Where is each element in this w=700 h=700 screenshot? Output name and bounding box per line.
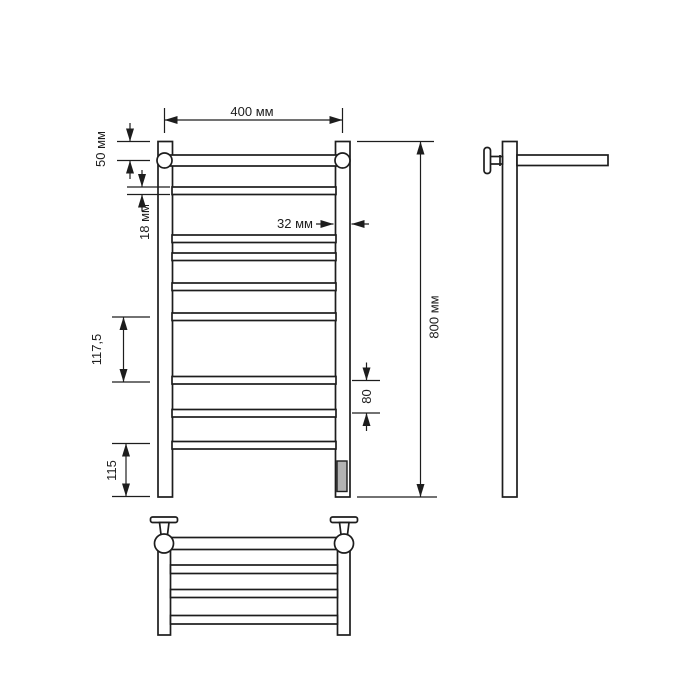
dim-post-label: 32 мм (277, 216, 313, 231)
technical-drawing-canvas: 400 мм 50 мм 18 мм 32 мм (0, 0, 700, 700)
dim-post-32: 32 мм (277, 216, 369, 231)
dim-tube-label: 18 мм (137, 204, 152, 240)
dim-spacing-117-label: 117,5 (89, 334, 104, 366)
dim-spacing-80-label: 80 (359, 389, 374, 403)
dim-height-800: 800 мм (357, 142, 442, 498)
front-rung (172, 313, 336, 321)
top-rung (171, 616, 338, 625)
dim-offset-115-label: 115 (104, 460, 119, 481)
dim-spacing-117: 117,5 (89, 317, 150, 382)
side-post (503, 142, 518, 498)
heating-element (337, 461, 347, 492)
top-left-post (158, 548, 171, 635)
dim-width-label: 400 мм (230, 104, 273, 119)
front-right-joint (335, 153, 350, 168)
top-rail (168, 538, 340, 550)
top-left-joint (155, 534, 174, 553)
side-bracket-flange (484, 148, 491, 174)
dim-offset-label: 50 мм (93, 131, 108, 167)
dim-spacing-80: 80 (352, 363, 380, 432)
top-right-bracket-stem (340, 523, 350, 535)
top-view (151, 517, 358, 635)
top-left-bracket-stem (160, 523, 170, 535)
front-rung (172, 235, 336, 243)
side-view (484, 142, 608, 498)
top-rung (171, 565, 338, 574)
front-right-post (336, 142, 351, 498)
top-right-post (338, 548, 351, 635)
front-rung (172, 410, 336, 418)
front-left-joint (157, 153, 172, 168)
dim-offset-115: 115 (104, 444, 150, 497)
dim-height-label: 800 мм (427, 295, 442, 338)
front-rung (172, 283, 336, 291)
towel-rail-dimension-drawing: 400 мм 50 мм 18 мм 32 мм (0, 0, 700, 700)
top-right-joint (335, 534, 354, 553)
front-top-rail (165, 155, 342, 166)
dim-width-400: 400 мм (165, 104, 343, 133)
front-rung (172, 377, 336, 385)
front-view (157, 142, 350, 498)
side-top-bar (517, 155, 608, 166)
front-rung (172, 253, 336, 261)
front-rung (172, 442, 336, 450)
front-rung (172, 187, 336, 195)
top-rung (171, 590, 338, 598)
